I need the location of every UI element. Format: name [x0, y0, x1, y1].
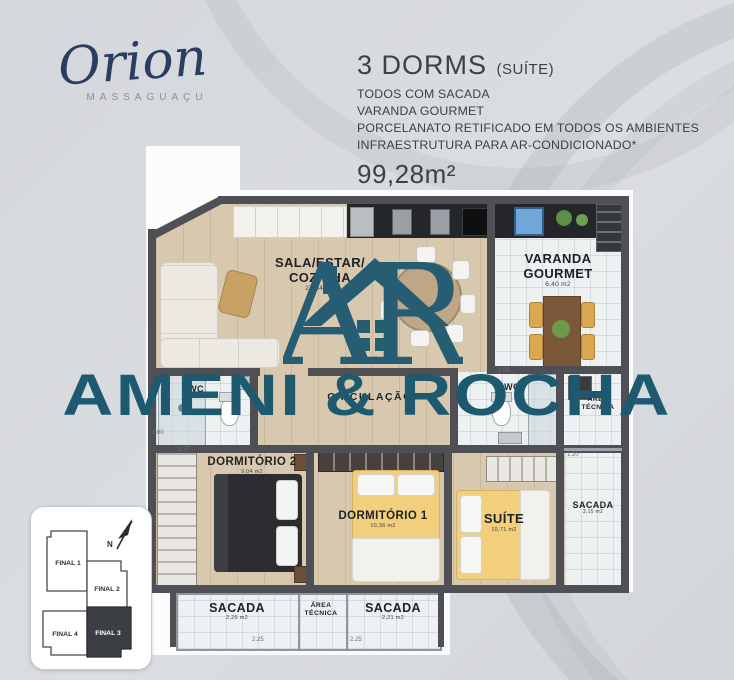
pillow [397, 474, 435, 496]
spec-feature: PORCELANATO RETIFICADO EM TODOS OS AMBIE… [357, 120, 722, 137]
brand-name: Orion [56, 22, 280, 97]
svg-text:FINAL 3: FINAL 3 [95, 630, 121, 637]
spec-title: 3 DORMS [357, 50, 487, 80]
wardrobe-suite [486, 456, 558, 482]
svg-text:FINAL 4: FINAL 4 [52, 631, 78, 638]
pillow [357, 474, 395, 496]
label-dorm2: DORMITÓRIO 2 9,04 m2 [188, 456, 316, 475]
label-sacada-bottom-mid: SACADA 2,21 m2 [350, 601, 436, 621]
wall-suite-sacada [556, 452, 564, 593]
dimension-label: 1.60 [152, 430, 164, 436]
svg-text:FINAL 2: FINAL 2 [94, 586, 120, 593]
oven [392, 209, 412, 235]
spec-area: 99,28m² [357, 159, 722, 190]
brand-logo: Orion MASSAGUAÇU [58, 30, 278, 130]
dimension-label: 2.25 [350, 637, 362, 643]
spec-panel: 3 DORMS (SUÍTE) TODOS COM SACADA VARANDA… [357, 50, 722, 190]
keyplan-unit-final2: FINAL 2 [87, 561, 127, 609]
label-area-tecnica-bottom: ÁREA TÉCNICA [300, 602, 342, 617]
flyer-canvas: Orion MASSAGUAÇU 3 DORMS (SUÍTE) TODOS C… [0, 0, 734, 680]
label-dorm1: DORMITÓRIO 1 10,36 m2 [320, 510, 446, 529]
watermark-text: AMENI & ROCHA [0, 362, 734, 429]
dimension-label: 1.20 [567, 452, 579, 458]
gourmet-chair [581, 302, 595, 328]
label-sacada-bottom-left: SACADA 2,26 m2 [192, 601, 282, 621]
watermark-ar-logo: A R [283, 236, 463, 371]
dimension-label: 2.25 [252, 637, 264, 643]
floor-sacada-right [565, 450, 621, 586]
svg-text:FINAL 1: FINAL 1 [55, 560, 81, 567]
sink [514, 207, 544, 236]
blanket [520, 490, 550, 580]
sacada-right-rail [564, 448, 622, 451]
balcony-post [438, 593, 444, 647]
keyplan-unit-final1: FINAL 1 [47, 531, 87, 591]
gourmet-chair [529, 302, 543, 328]
keyplan-unit-final4: FINAL 4 [43, 611, 87, 655]
spec-title-suffix: (SUÍTE) [496, 61, 554, 78]
house-chimney-icon [323, 266, 337, 294]
wall-top [218, 196, 621, 204]
grill [596, 204, 623, 252]
dimension-label: 2.77 [178, 447, 190, 453]
label-varanda: VARANDA GOURMET 6,40 m2 [500, 252, 616, 288]
wardrobe-dorm1 [318, 450, 444, 472]
spec-feature: VARANDA GOURMET [357, 103, 722, 120]
key-plan: N FINAL 1 FINAL 2 FINAL 4 FINAL 3 [30, 506, 152, 670]
north-label: N [107, 540, 113, 549]
keyplan-unit-final3-active: FINAL 3 [87, 607, 131, 657]
spec-feature: TODOS COM SACADA [357, 86, 722, 103]
plant [576, 214, 588, 226]
bed-runner [214, 474, 228, 572]
gourmet-chair [529, 334, 543, 360]
bathroom-sink [498, 432, 522, 444]
label-suite: SUÍTE 10,71 m2 [468, 512, 540, 533]
pillow [276, 480, 298, 520]
plant [556, 210, 572, 226]
spec-feature: INFRAESTRUTURA PARA AR-CONDICIONADO* [357, 137, 722, 154]
label-sacada-right: SACADA 3,15 m2 [564, 500, 622, 516]
spec-title-row: 3 DORMS (SUÍTE) [357, 50, 722, 81]
north-arrow-icon: N [107, 519, 132, 549]
gourmet-chair [581, 334, 595, 360]
pillow [276, 526, 298, 566]
tv-cabinet [233, 206, 347, 238]
cooktop [462, 208, 488, 236]
balcony-post [170, 593, 176, 647]
fridge [350, 207, 374, 237]
microwave [430, 209, 450, 235]
wall-sala-varanda [487, 196, 495, 372]
plant [552, 320, 570, 338]
pillow [460, 536, 482, 574]
blanket [352, 538, 440, 582]
